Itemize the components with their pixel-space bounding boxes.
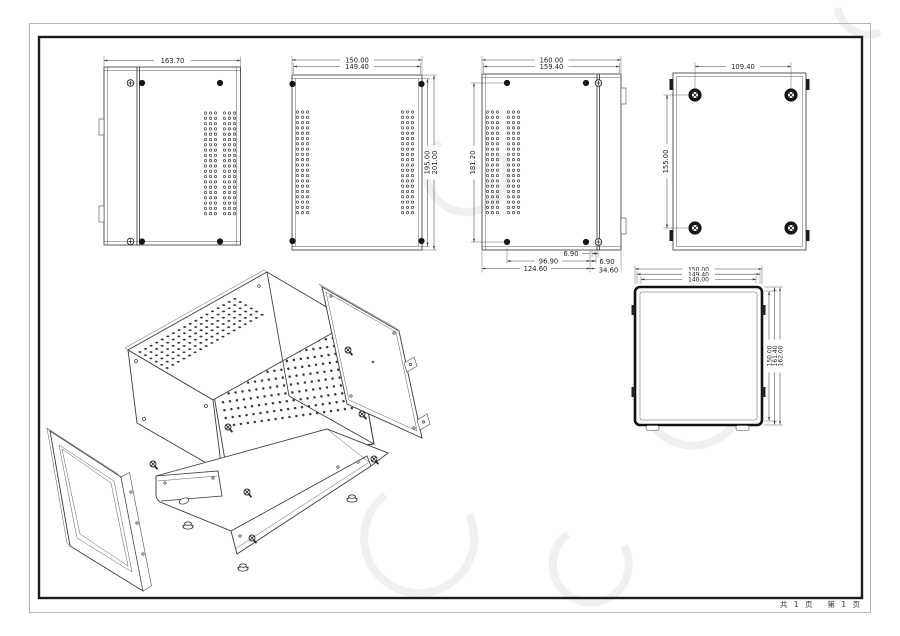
screw-head-icon: [217, 80, 223, 86]
vent-holes: [204, 112, 216, 215]
screw-head-icon: [289, 238, 295, 244]
screw-head-icon: [217, 238, 223, 244]
dim-label: 162.00: [778, 345, 785, 366]
dim-label: 109.40: [731, 63, 755, 71]
screw-head-icon: [289, 81, 295, 87]
dim-label: 6.90: [563, 250, 578, 258]
screw-head-icon: [139, 80, 145, 86]
drawing-sheet: 163.70 150.00 149.40 195.00 201.00: [0, 0, 900, 636]
bottom-view: 109.40 155.00: [662, 63, 810, 251]
dim-label: 163.70: [161, 57, 185, 65]
dim-label: 201.00: [431, 151, 439, 175]
exploded-view: [47, 270, 430, 591]
corner-tabs: [670, 79, 810, 241]
dim-label: 159.40: [540, 63, 564, 71]
rubber-foot-icon: [784, 88, 797, 101]
dim-label: 6.90: [599, 258, 614, 266]
screw-head-icon: [583, 239, 589, 245]
screw-head-icon: [504, 80, 510, 86]
current-page-label: 第 1 页: [827, 599, 862, 610]
screw-icon: [127, 80, 134, 87]
vent-holes: [401, 111, 413, 214]
dim-label: 34.60: [599, 267, 618, 275]
screw-icon: [127, 238, 134, 245]
dim-label: 155.00: [662, 150, 670, 174]
dim-label: 124.60: [524, 265, 548, 273]
rubber-foot-icon: [688, 221, 701, 234]
front-view: 150.00 149.40 195.00 201.00: [289, 56, 438, 250]
drawing-canvas: 163.70 150.00 149.40 195.00 201.00: [0, 0, 900, 636]
total-pages-label: 共 1 页: [780, 599, 815, 610]
rubber-foot-icon: [688, 88, 701, 101]
dim-label: 140.00: [688, 277, 709, 284]
vent-holes: [296, 111, 308, 214]
front-bezel-panel: [47, 428, 152, 591]
screw-head-icon: [504, 239, 510, 245]
screw-head-icon: [139, 238, 145, 244]
dim-label: 181.20: [469, 151, 477, 175]
dim-label: 149.40: [345, 63, 369, 71]
screw-head-icon: [583, 80, 589, 86]
top-view: 150.00 149.40 140.00 150.00 161.40 162.0…: [632, 266, 785, 431]
screw-icon: [595, 239, 602, 246]
rubber-foot-icon: [347, 495, 357, 502]
vent-holes: [223, 112, 235, 215]
rubber-foot-icon: [238, 564, 248, 571]
screw-head-icon: [418, 81, 424, 87]
screw-icon: [150, 461, 157, 469]
side-view-right: 160.00 159.40 181.20 6.90 96.90 6.90 124…: [469, 56, 627, 275]
side-view-left: 163.70: [99, 56, 241, 245]
rubber-foot-icon: [183, 522, 193, 529]
rubber-foot-icon: [784, 221, 797, 234]
screw-icon: [595, 80, 602, 87]
sheet-footer: 共 1 页 第 1 页: [758, 599, 862, 610]
screw-head-icon: [418, 238, 424, 244]
